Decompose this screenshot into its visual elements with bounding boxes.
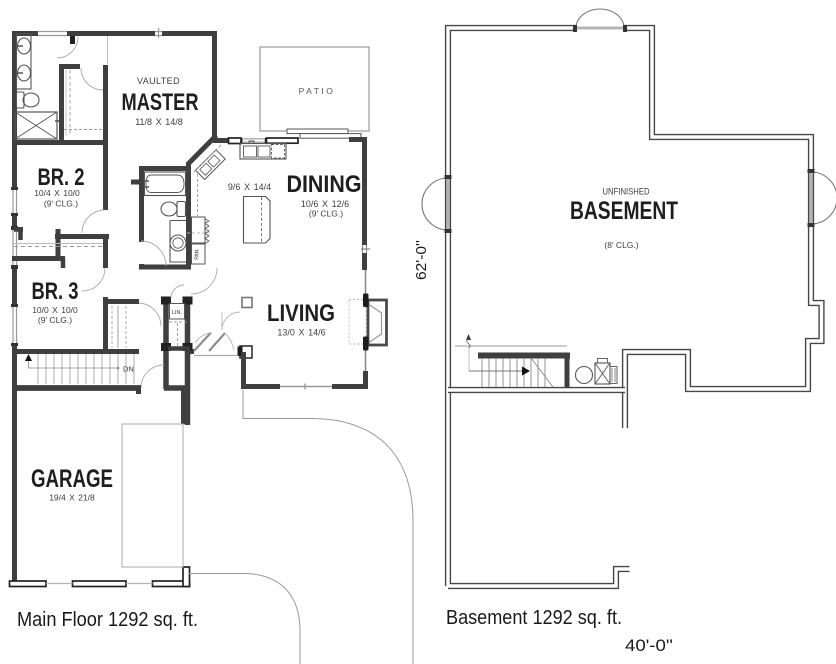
svg-text:MASTER: MASTER <box>122 89 199 116</box>
svg-text:9/6 X 14/4: 9/6 X 14/4 <box>228 182 271 192</box>
svg-text:BR. 3: BR. 3 <box>32 278 79 305</box>
svg-text:10/6 X 12/6: 10/6 X 12/6 <box>301 199 349 209</box>
svg-text:DN: DN <box>123 365 134 374</box>
svg-text:LIN.: LIN. <box>172 310 183 316</box>
svg-text:(8' CLG.): (8' CLG.) <box>604 240 638 250</box>
svg-text:(9' CLG.): (9' CLG.) <box>38 315 72 325</box>
svg-text:Main Floor 1292 sq. ft.: Main Floor 1292 sq. ft. <box>17 609 198 631</box>
svg-text:LIVING: LIVING <box>267 300 335 327</box>
svg-text:62'-0'': 62'-0'' <box>413 240 430 280</box>
svg-text:Basement 1292 sq. ft.: Basement 1292 sq. ft. <box>446 607 622 629</box>
svg-text:11/8 X 14/8: 11/8 X 14/8 <box>135 117 183 127</box>
svg-text:10/4 X 10/0: 10/4 X 10/0 <box>34 188 80 198</box>
svg-text:GARAGE: GARAGE <box>31 465 113 493</box>
svg-text:19/4 X 21/8: 19/4 X 21/8 <box>49 493 95 503</box>
svg-text:40'-0'': 40'-0'' <box>625 636 673 655</box>
svg-text:DINING: DINING <box>287 171 362 198</box>
svg-text:10/0 X 10/0: 10/0 X 10/0 <box>32 305 78 315</box>
svg-text:UNFINISHED: UNFINISHED <box>603 187 650 198</box>
svg-text:13/0 X 14/6: 13/0 X 14/6 <box>277 328 325 338</box>
svg-text:PAN.: PAN. <box>195 248 201 259</box>
svg-text:BR. 2: BR. 2 <box>38 164 85 191</box>
svg-text:(9' CLG.): (9' CLG.) <box>309 209 343 219</box>
svg-text:PATIO: PATIO <box>299 86 336 96</box>
svg-text:(9' CLG.): (9' CLG.) <box>44 199 78 209</box>
svg-text:BASEMENT: BASEMENT <box>570 197 678 225</box>
svg-text:VAULTED: VAULTED <box>137 76 180 86</box>
